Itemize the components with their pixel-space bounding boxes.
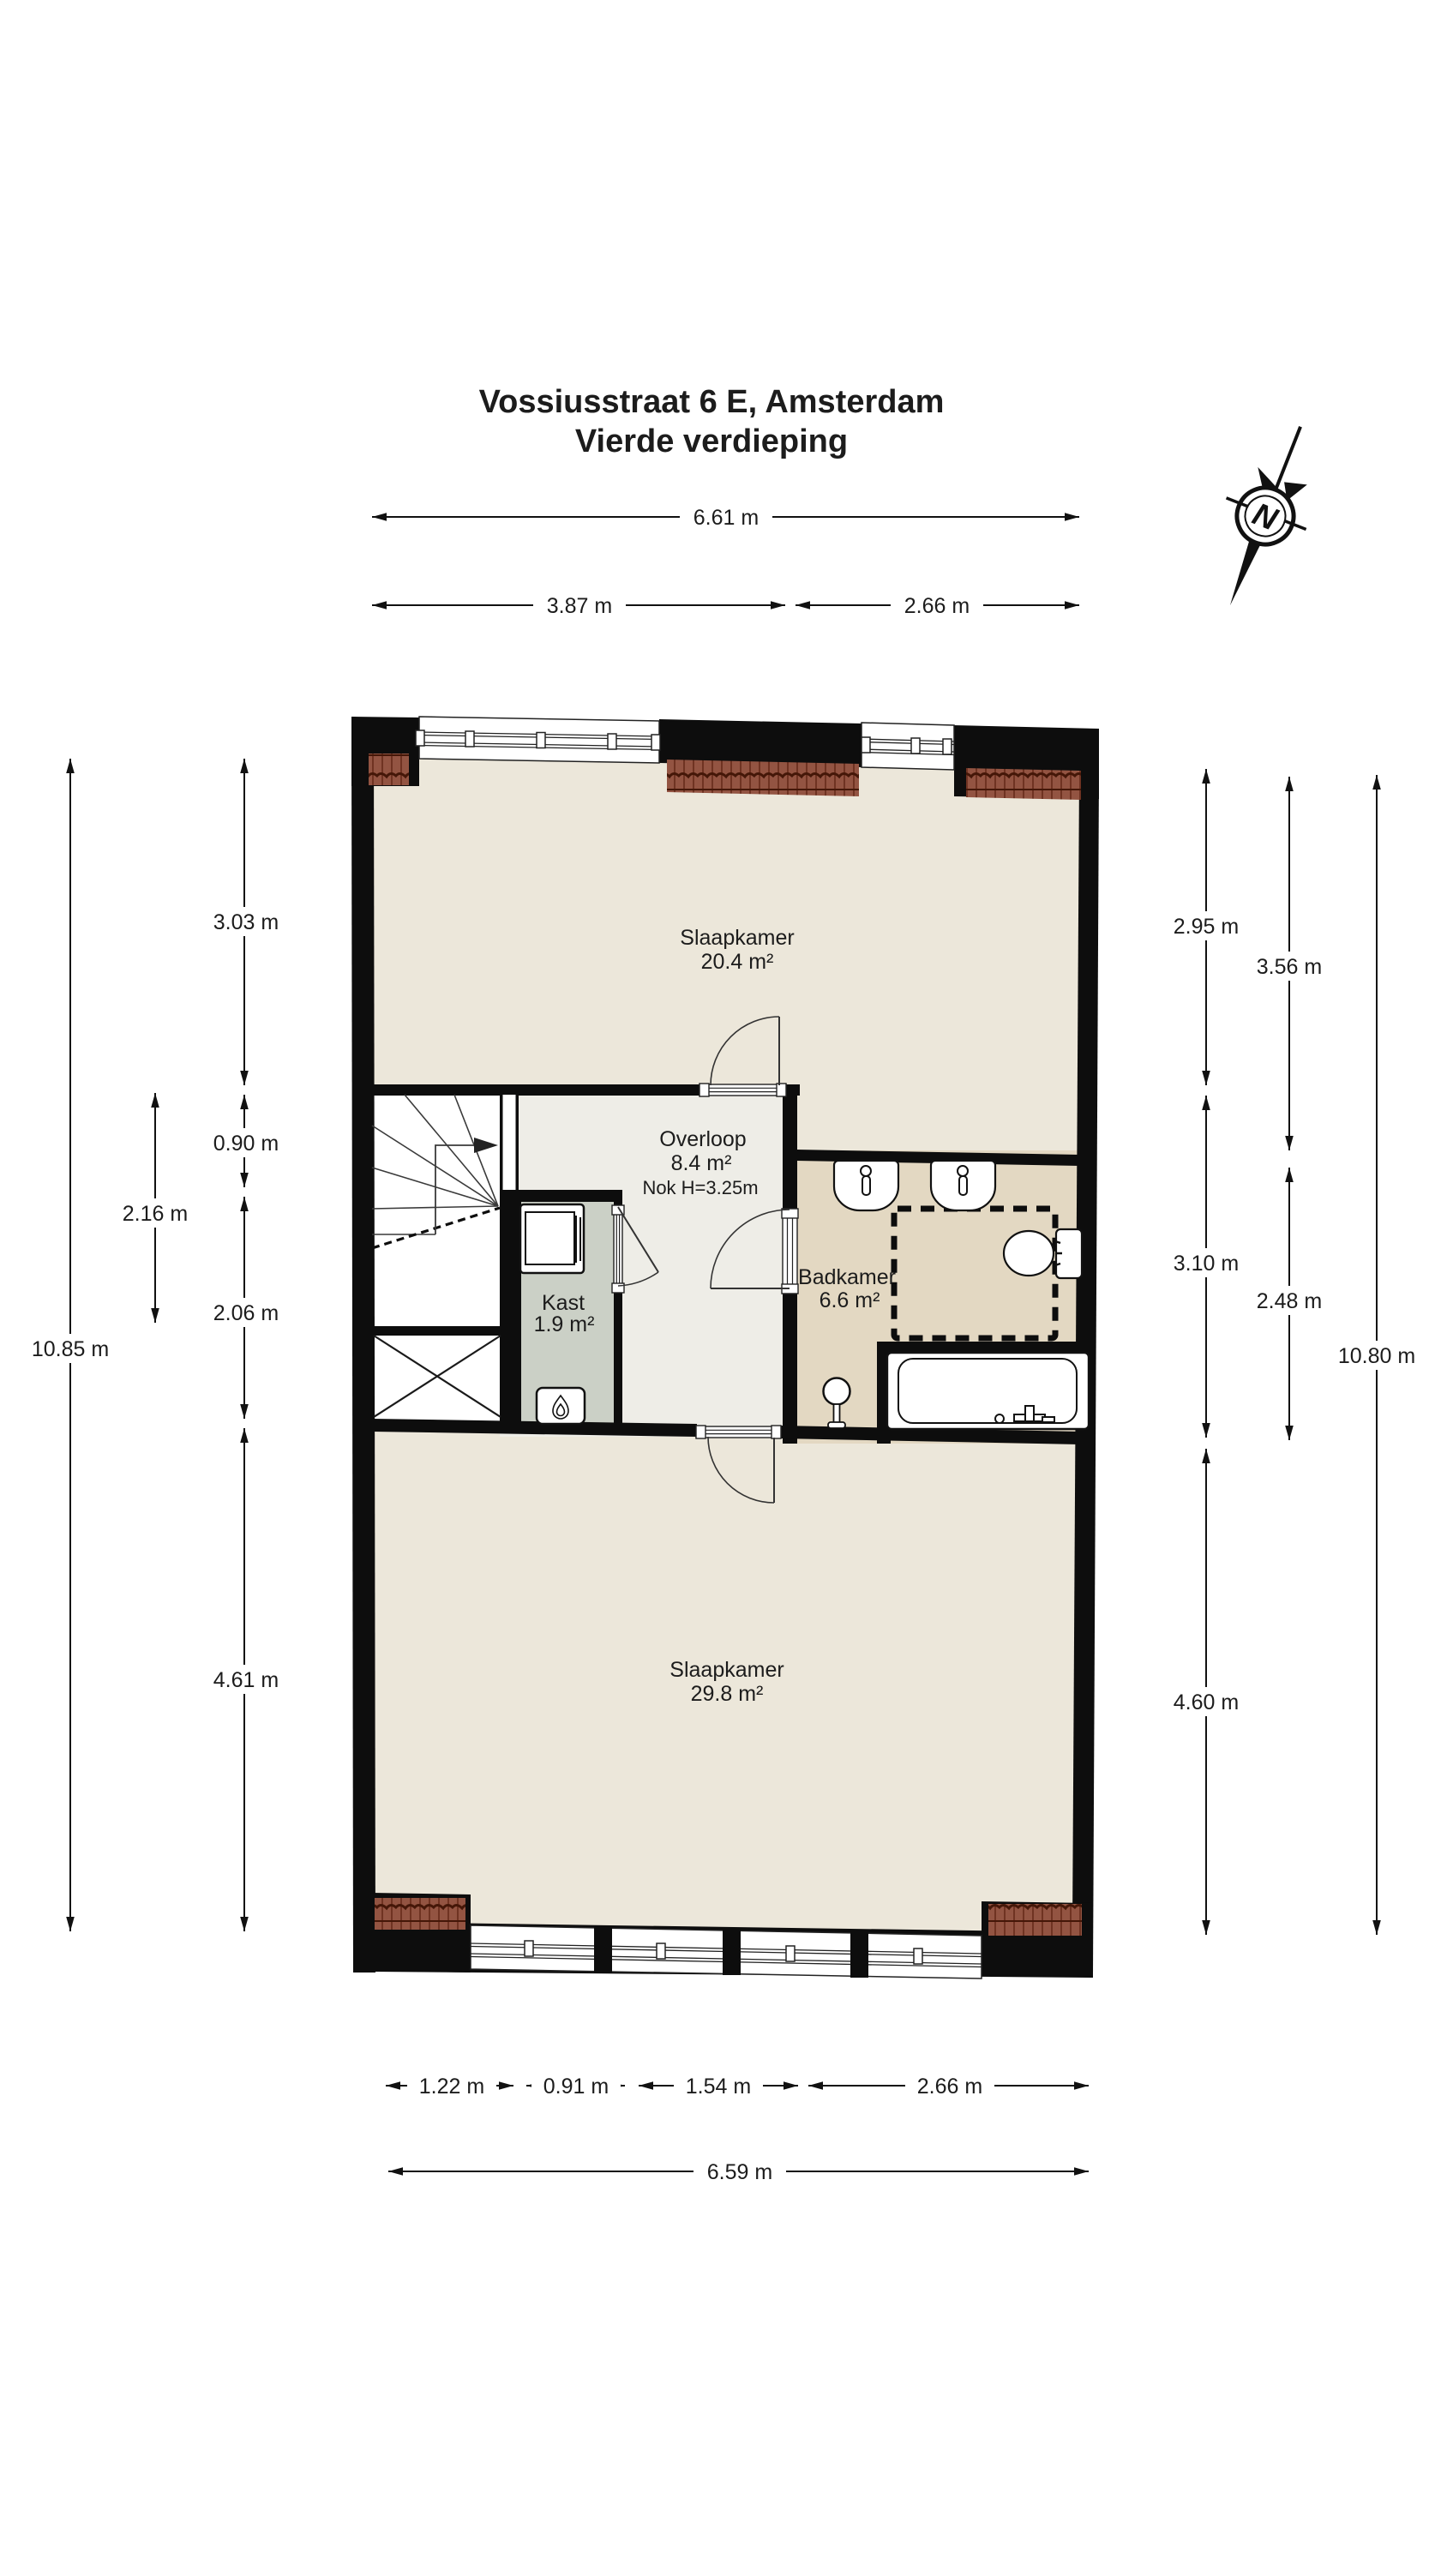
svg-text:8.4 m²: 8.4 m²: [671, 1151, 732, 1175]
svg-text:1.54 m: 1.54 m: [686, 2075, 751, 2099]
svg-text:1.22 m: 1.22 m: [419, 2075, 484, 2099]
svg-text:2.66 m: 2.66 m: [917, 2075, 982, 2099]
svg-text:Nok H=3.25m: Nok H=3.25m: [642, 1177, 758, 1198]
svg-text:Vierde verdieping: Vierde verdieping: [575, 423, 848, 459]
svg-text:29.8 m²: 29.8 m²: [691, 1682, 764, 1706]
svg-text:6.59 m: 6.59 m: [707, 2160, 772, 2184]
svg-text:0.91 m: 0.91 m: [543, 2075, 609, 2099]
svg-text:2.95 m: 2.95 m: [1174, 915, 1239, 939]
svg-text:Overloop: Overloop: [659, 1127, 746, 1151]
svg-text:2.48 m: 2.48 m: [1257, 1289, 1322, 1313]
svg-text:3.03 m: 3.03 m: [213, 910, 279, 934]
svg-text:20.4 m²: 20.4 m²: [701, 950, 774, 974]
svg-text:10.80 m: 10.80 m: [1338, 1344, 1415, 1368]
svg-text:0.90 m: 0.90 m: [213, 1132, 279, 1156]
svg-text:2.16 m: 2.16 m: [123, 1202, 188, 1226]
svg-text:3.87 m: 3.87 m: [547, 594, 612, 618]
svg-text:Vossiusstraat 6 E, Amsterdam: Vossiusstraat 6 E, Amsterdam: [479, 384, 945, 420]
svg-text:3.56 m: 3.56 m: [1257, 955, 1322, 979]
svg-text:2.06 m: 2.06 m: [213, 1301, 279, 1325]
svg-text:4.60 m: 4.60 m: [1174, 1690, 1239, 1714]
svg-text:2.66 m: 2.66 m: [904, 594, 970, 618]
svg-text:3.10 m: 3.10 m: [1174, 1252, 1239, 1276]
svg-text:10.85 m: 10.85 m: [32, 1337, 109, 1361]
svg-text:Kast: Kast: [542, 1291, 585, 1315]
svg-text:Slaapkamer: Slaapkamer: [680, 926, 794, 950]
svg-text:Slaapkamer: Slaapkamer: [669, 1658, 784, 1682]
svg-text:Badkamer: Badkamer: [798, 1265, 896, 1289]
svg-text:6.61 m: 6.61 m: [693, 506, 759, 530]
svg-text:1.9 m²: 1.9 m²: [534, 1312, 595, 1336]
svg-text:4.61 m: 4.61 m: [213, 1668, 279, 1692]
svg-text:6.6 m²: 6.6 m²: [820, 1288, 880, 1312]
